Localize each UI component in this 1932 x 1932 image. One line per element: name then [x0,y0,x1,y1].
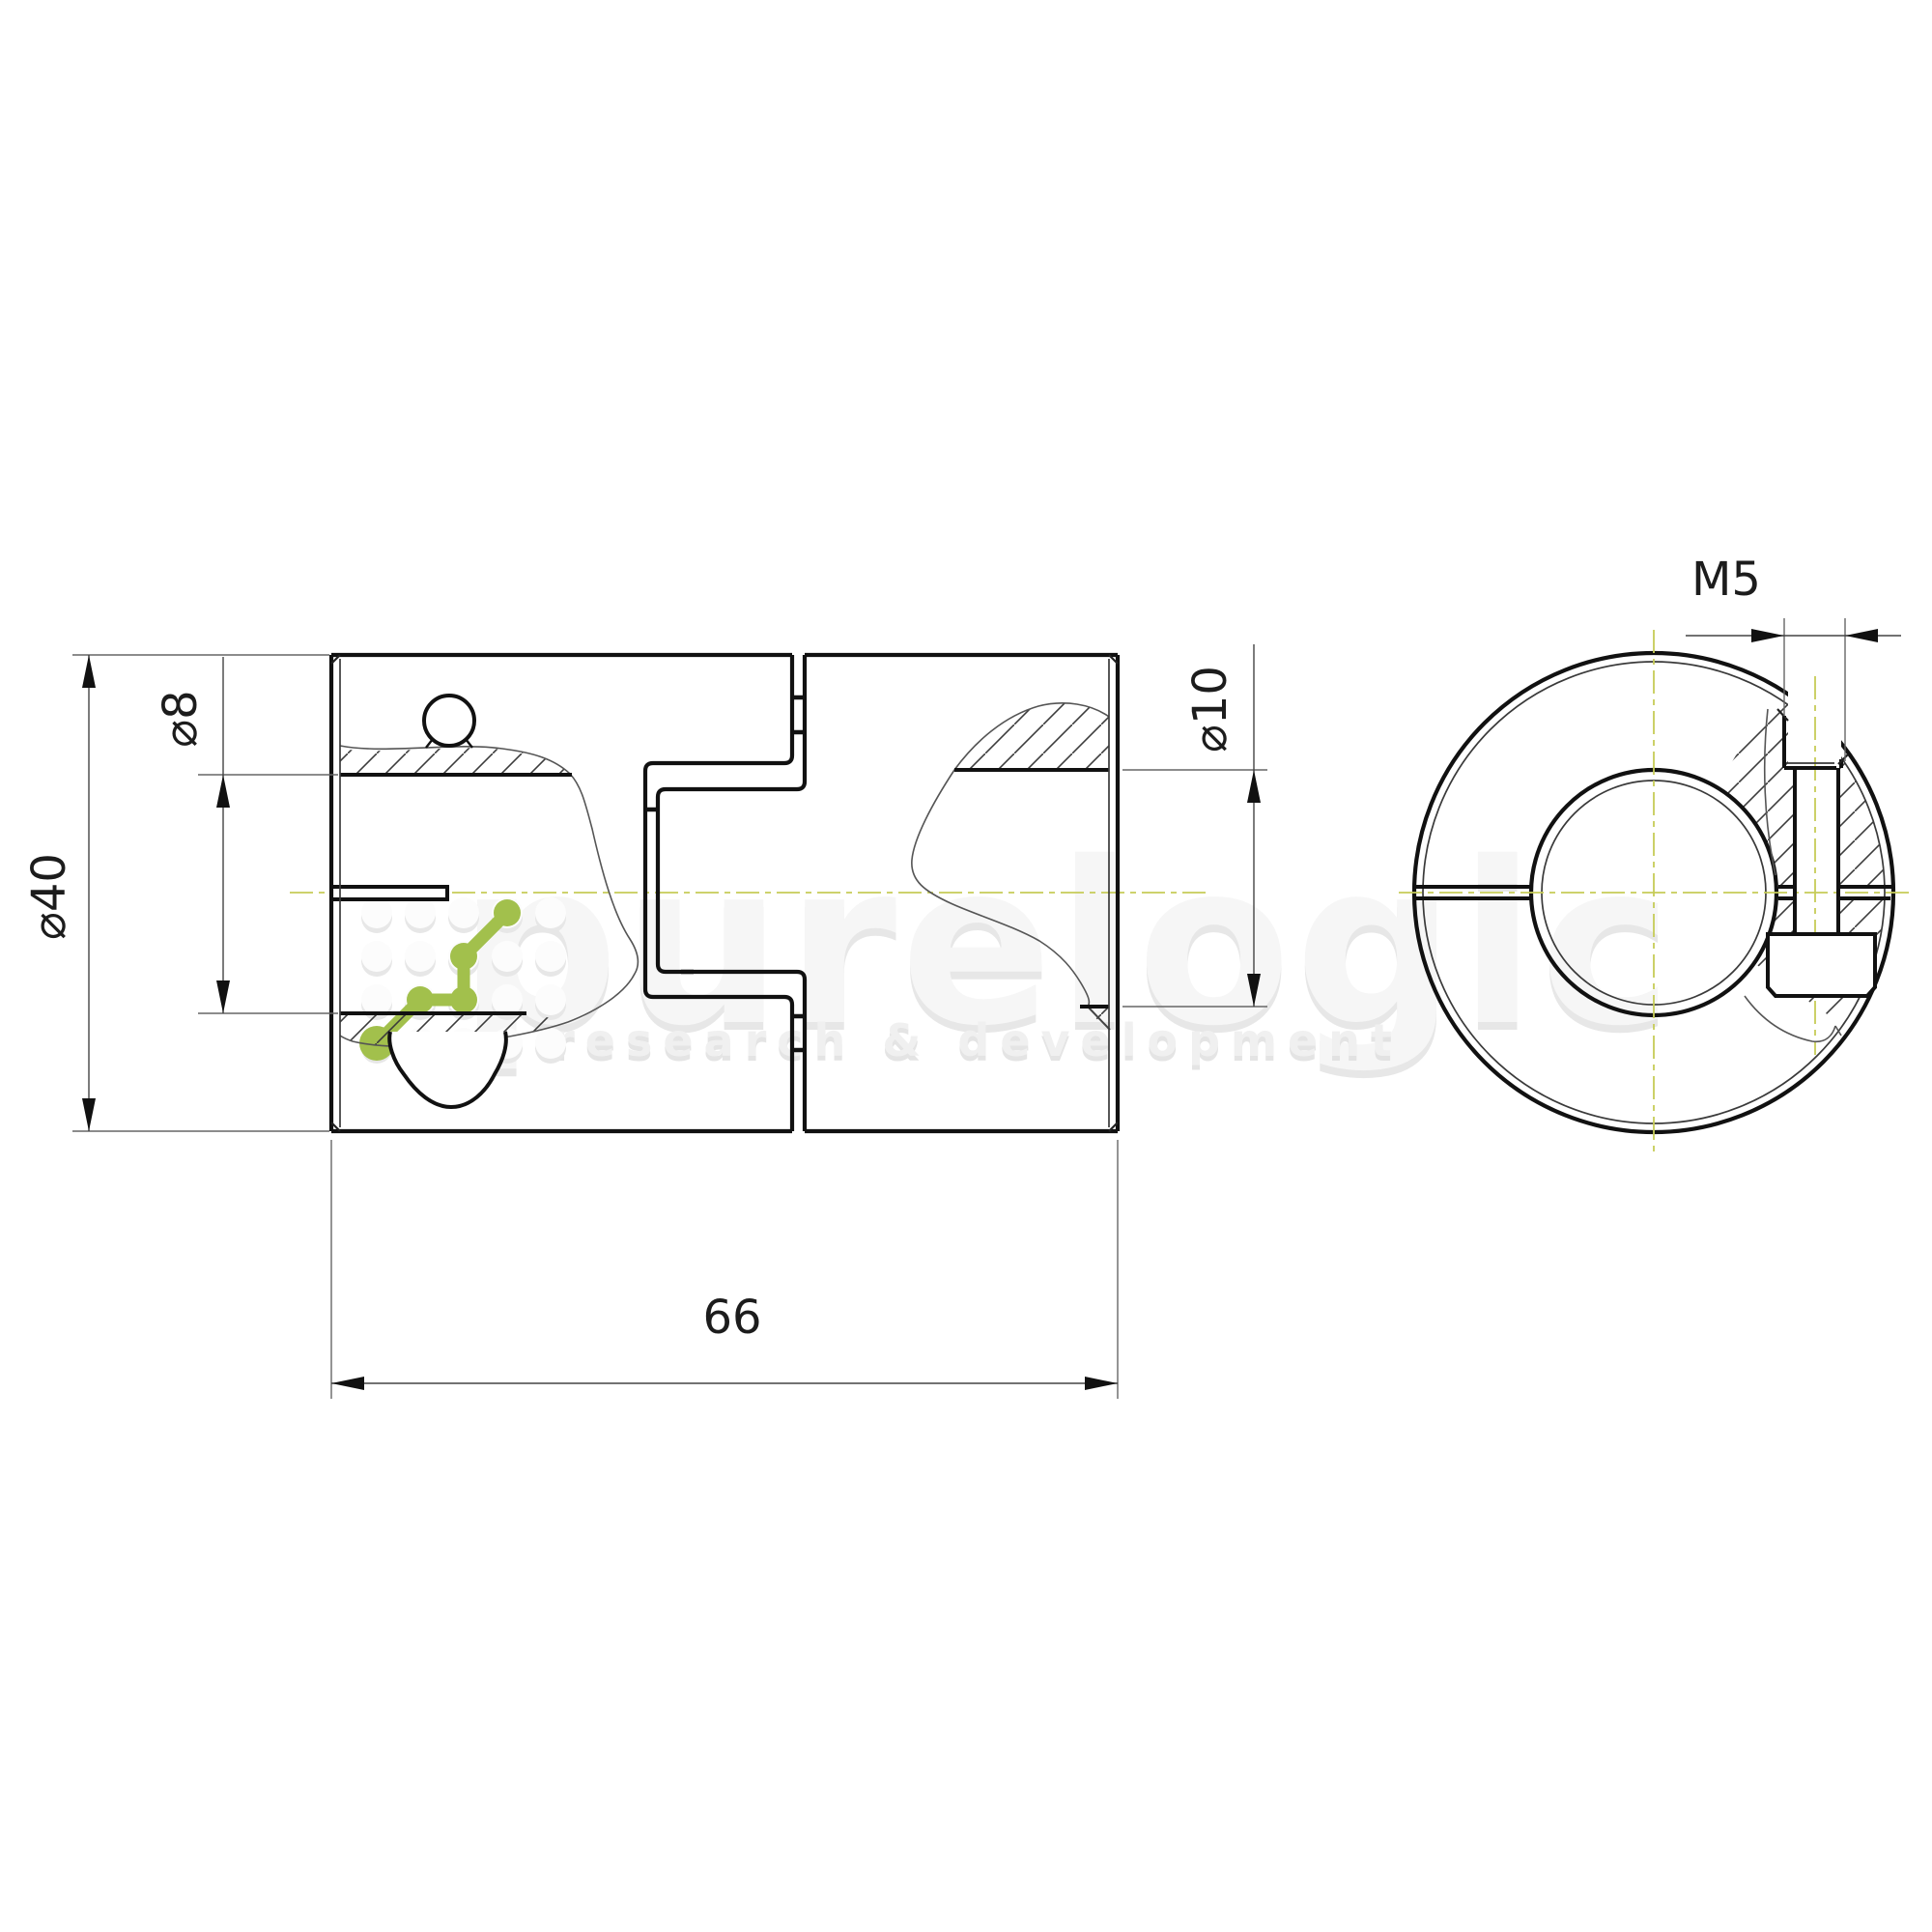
section-hatch-upper-left [340,748,572,776]
screw-head [1768,934,1875,996]
dim-label-outer-diameter: ⌀40 [22,853,76,940]
technical-drawing-page: purelogic purelogic research & developme… [0,0,1932,1932]
coupling-drawing-canvas: purelogic purelogic research & developme… [0,0,1932,1932]
set-screw-hole-top [424,696,474,746]
dim-label-right-bore: ⌀10 [1183,666,1237,753]
dim-label-left-bore: ⌀8 [154,690,208,747]
section-hatch-upper-right [954,703,1109,770]
clamp-slot-fill [332,888,446,898]
screw-recess-hole-bottom [389,1032,506,1107]
dim-label-length: 66 [702,1291,761,1345]
dim-label-thread: M5 [1691,553,1761,607]
dim-left-bore: ⌀8 [154,657,338,1013]
dim-length: 66 [331,1140,1118,1399]
watermark-tagline: research & development [553,1014,1403,1066]
